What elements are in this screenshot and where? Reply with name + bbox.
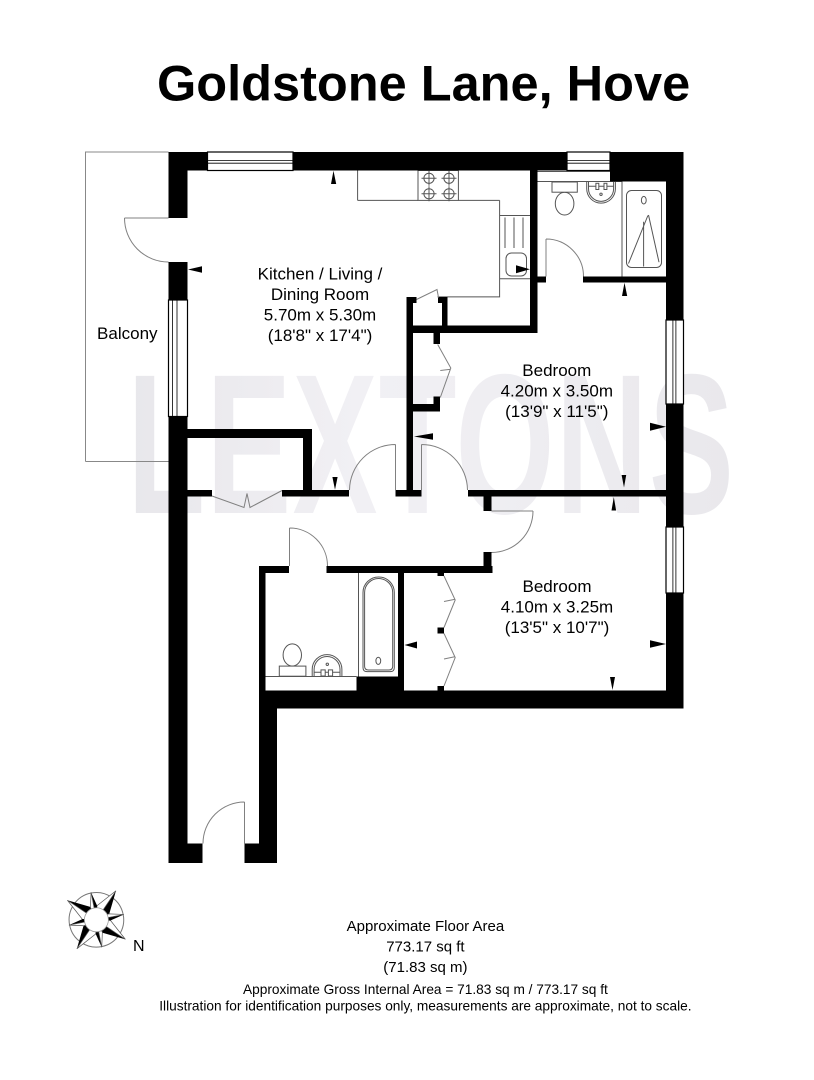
svg-text:5.70m x 5.30m: 5.70m x 5.30m: [264, 306, 376, 325]
svg-text:Balcony: Balcony: [97, 324, 158, 343]
svg-text:(71.83 sq m): (71.83 sq m): [383, 959, 467, 976]
svg-text:(18'8" x 17'4"): (18'8" x 17'4"): [268, 326, 373, 345]
svg-text:N: N: [133, 938, 145, 955]
svg-text:(13'9" x 11'5"): (13'9" x 11'5"): [505, 402, 608, 421]
svg-text:Kitchen / Living /: Kitchen / Living /: [258, 265, 383, 284]
svg-text:773.17 sq ft: 773.17 sq ft: [386, 939, 465, 956]
svg-text:Bedroom: Bedroom: [523, 577, 592, 596]
svg-text:Bedroom: Bedroom: [522, 361, 591, 380]
svg-text:Dining Room: Dining Room: [271, 285, 369, 304]
svg-text:Approximate Gross Internal Are: Approximate Gross Internal Area = 71.83 …: [243, 982, 608, 997]
svg-text:Illustration for identificatio: Illustration for identification purposes…: [159, 999, 691, 1014]
svg-text:4.20m x 3.50m: 4.20m x 3.50m: [501, 382, 613, 401]
svg-text:Approximate Floor Area: Approximate Floor Area: [347, 918, 505, 935]
svg-text:(13'5" x 10'7"): (13'5" x 10'7"): [505, 618, 610, 637]
svg-text:4.10m x 3.25m: 4.10m x 3.25m: [501, 598, 613, 617]
svg-text:Goldstone Lane, Hove: Goldstone Lane, Hove: [157, 54, 690, 111]
